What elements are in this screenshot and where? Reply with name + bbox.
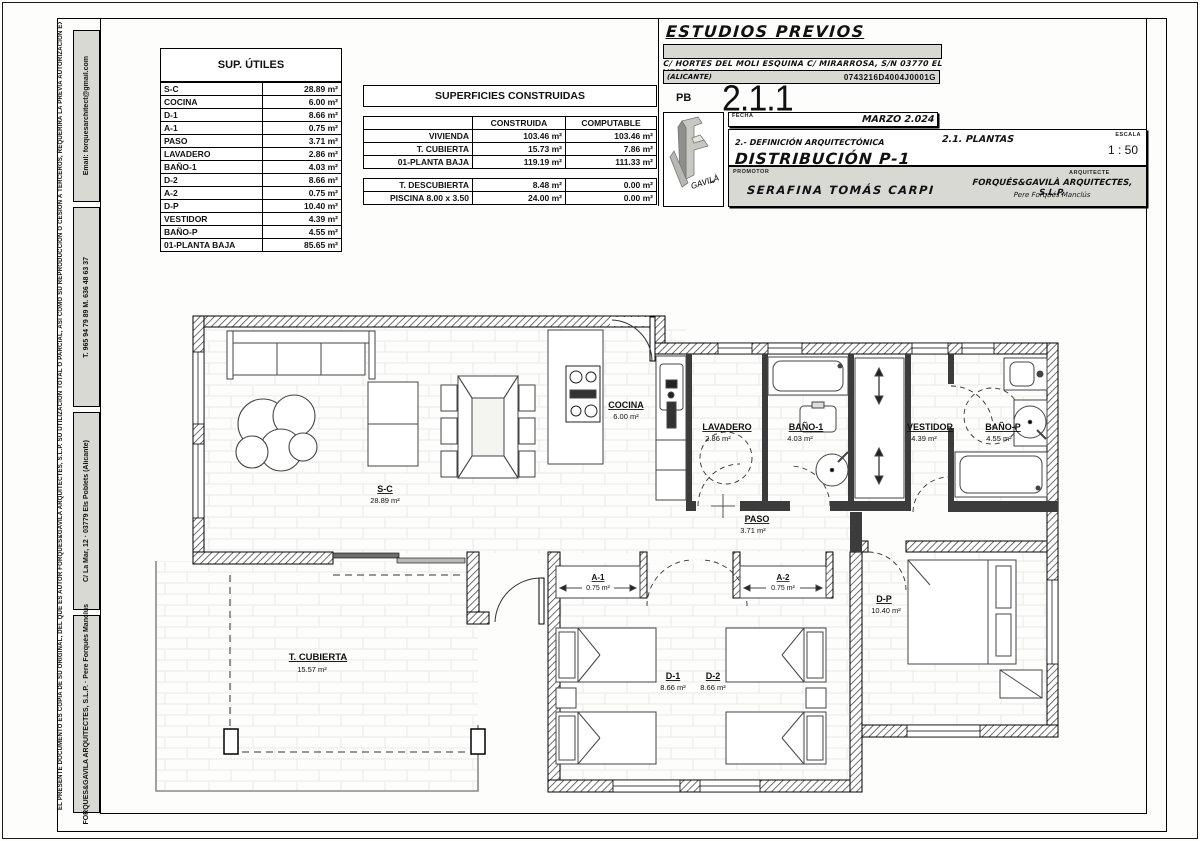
kitchen-counter <box>656 356 686 500</box>
plant <box>236 395 317 471</box>
sofa <box>227 331 375 379</box>
room-area: 0.75 m² <box>586 585 610 592</box>
room-label: T. CUBIERTA <box>289 652 348 663</box>
floor-plan-drawing: S-C 28.89 m² COCINA 6.00 m² LAVADERO 2.8… <box>0 0 1200 841</box>
room-label: VESTIDOR <box>907 422 954 432</box>
room-area: 8.66 m² <box>660 683 686 692</box>
room-area: 3.71 m² <box>740 526 766 535</box>
plan-sheet: EL PRESENTE DOCUMENTO ES COPIA DE SU ORI… <box>0 0 1200 841</box>
room-area: 4.55 m² <box>986 434 1012 443</box>
room-label: D-2 <box>706 671 721 681</box>
room-area: 15.57 m² <box>297 665 327 674</box>
hall-wardrobe <box>855 358 904 498</box>
dining-set <box>441 376 535 478</box>
room-area: 4.03 m² <box>787 434 813 443</box>
room-label: D-P <box>876 594 892 604</box>
room-area: 6.00 m² <box>613 412 639 421</box>
room-label: COCINA <box>608 400 644 410</box>
room-label: BAÑO-1 <box>789 422 824 432</box>
room-label: A-2 <box>777 573 790 582</box>
room-area: 2.86 m² <box>705 434 731 443</box>
closet-a1 <box>556 566 640 598</box>
room-area: 10.40 m² <box>871 606 901 615</box>
coffee-table <box>368 382 418 466</box>
room-area: 4.39 m² <box>911 434 937 443</box>
room-label: S-C <box>377 484 393 494</box>
room-label: A-1 <box>592 573 605 582</box>
room-area: 0.75 m² <box>771 585 795 592</box>
room-label: D-1 <box>666 671 681 681</box>
room-area: 8.66 m² <box>700 683 726 692</box>
kitchen-island <box>548 330 603 464</box>
closet-a2 <box>740 566 826 598</box>
room-label: BAÑO-P <box>985 422 1021 432</box>
room-label: LAVADERO <box>702 422 751 432</box>
room-area: 28.89 m² <box>370 496 400 505</box>
room-label: PASO <box>745 514 770 524</box>
